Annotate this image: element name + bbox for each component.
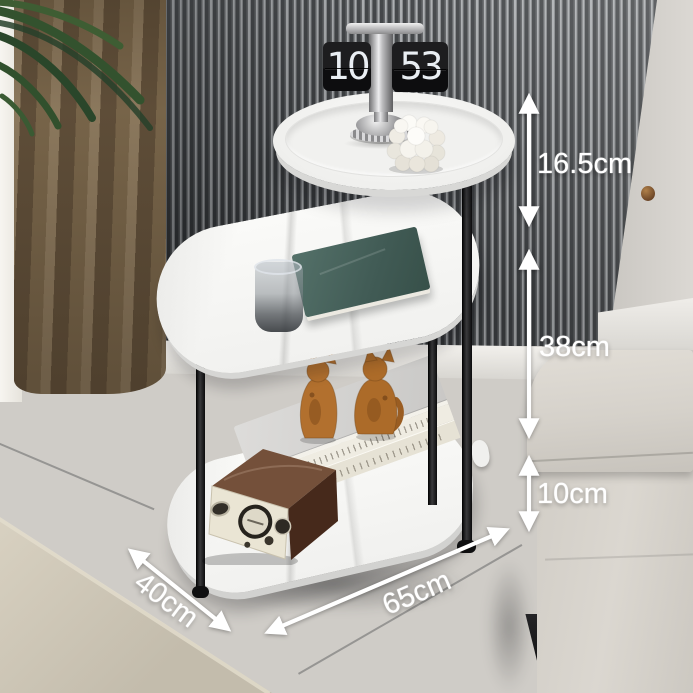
dimension-label-top-gap: 16.5cm	[537, 150, 632, 179]
dimension-label-bottom-clearance: 10cm	[537, 480, 608, 509]
product-photo-scene: 10 53	[0, 0, 693, 693]
dimension-label-middle-gap: 38cm	[539, 333, 610, 362]
